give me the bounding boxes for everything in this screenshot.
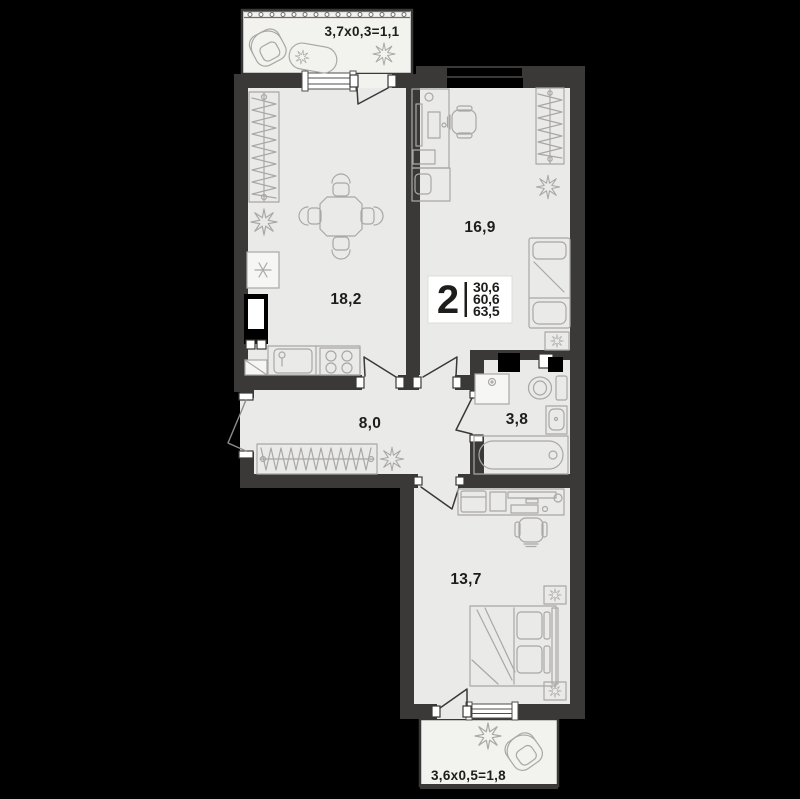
room-bottom-label: 13,7 xyxy=(450,571,481,588)
room-top-label: 16,9 xyxy=(464,219,495,236)
badge-divider xyxy=(465,282,468,317)
hallway-label: 8,0 xyxy=(359,415,381,432)
kitchen-label: 18,2 xyxy=(330,291,361,308)
badge-total-area: 63,5 xyxy=(473,303,500,319)
hallway-floor xyxy=(252,390,472,474)
vent-shaft-icon xyxy=(244,294,268,375)
floor-plan: 3,7х0,3=1,1 xyxy=(0,0,800,799)
bathroom-label: 3,8 xyxy=(506,411,529,428)
balcony-top-label: 3,7х0,3=1,1 xyxy=(325,24,400,39)
washing-machine-icon xyxy=(475,374,509,404)
balcony-bottom-label: 3,6х0,5=1,8 xyxy=(431,768,506,783)
apartment-badge: 2 30,6 60,6 63,5 xyxy=(428,276,512,323)
kitchen-window-icon xyxy=(302,71,356,91)
fridge-icon xyxy=(247,252,279,288)
floor-plan-canvas: 3,7х0,3=1,1 xyxy=(0,0,800,799)
bedroom-window-icon xyxy=(466,702,518,720)
balcony-top-floor xyxy=(242,10,412,74)
badge-room-count: 2 xyxy=(437,278,459,322)
